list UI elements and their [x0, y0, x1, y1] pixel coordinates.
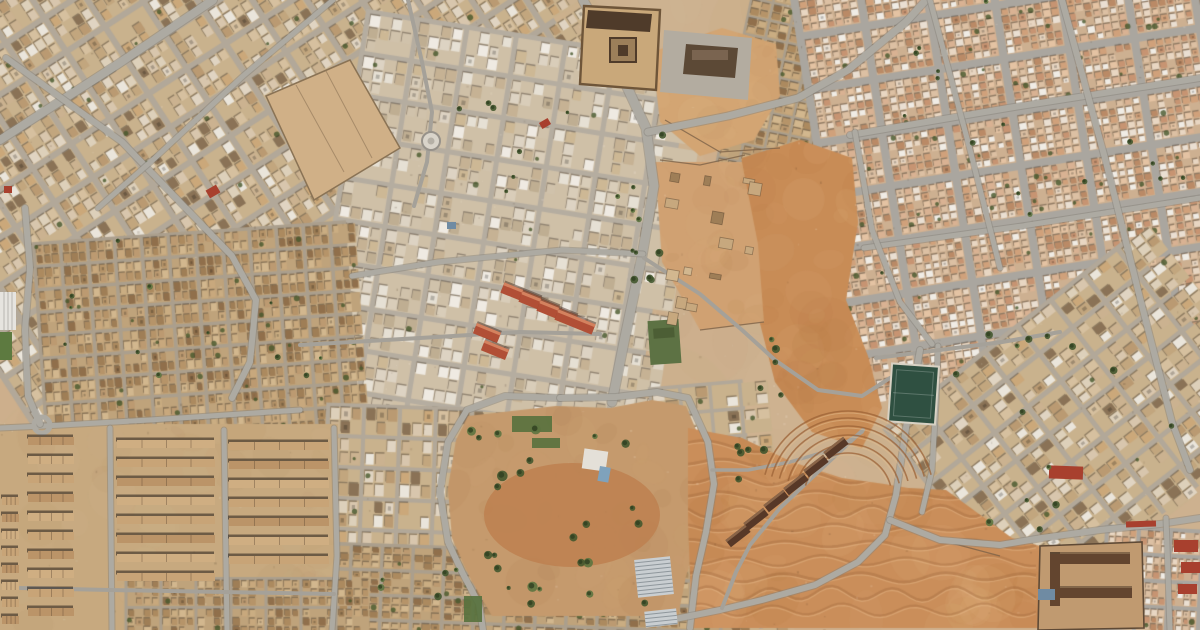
- road: [300, 332, 600, 345]
- walled-lot: [266, 60, 400, 200]
- road: [1062, 0, 1190, 470]
- road: [930, 0, 1000, 268]
- road-nw-diagonal: [0, 0, 213, 140]
- road: [876, 332, 1060, 358]
- greenhouses: [634, 556, 678, 627]
- green-field-strip: [0, 332, 12, 360]
- road: [850, 78, 1200, 135]
- apartment-row-blocks: [1, 435, 329, 625]
- east-compound: [660, 30, 752, 100]
- road: [408, 0, 432, 206]
- sparse-structures: [665, 172, 763, 325]
- sports-field: [888, 363, 939, 424]
- road: [864, 198, 1200, 248]
- road: [224, 430, 227, 630]
- red-roof-barracks: [473, 281, 596, 360]
- fort-compound: [580, 6, 660, 90]
- round-building: [422, 132, 440, 150]
- road: [25, 208, 40, 424]
- warehouse: [0, 292, 16, 330]
- school-compound: [1038, 542, 1144, 630]
- road: [644, 258, 890, 396]
- road: [110, 428, 112, 630]
- satellite-image: [0, 0, 1200, 630]
- loop-interior: [464, 416, 660, 622]
- map-features-overlay: [0, 0, 1200, 630]
- road: [332, 428, 337, 630]
